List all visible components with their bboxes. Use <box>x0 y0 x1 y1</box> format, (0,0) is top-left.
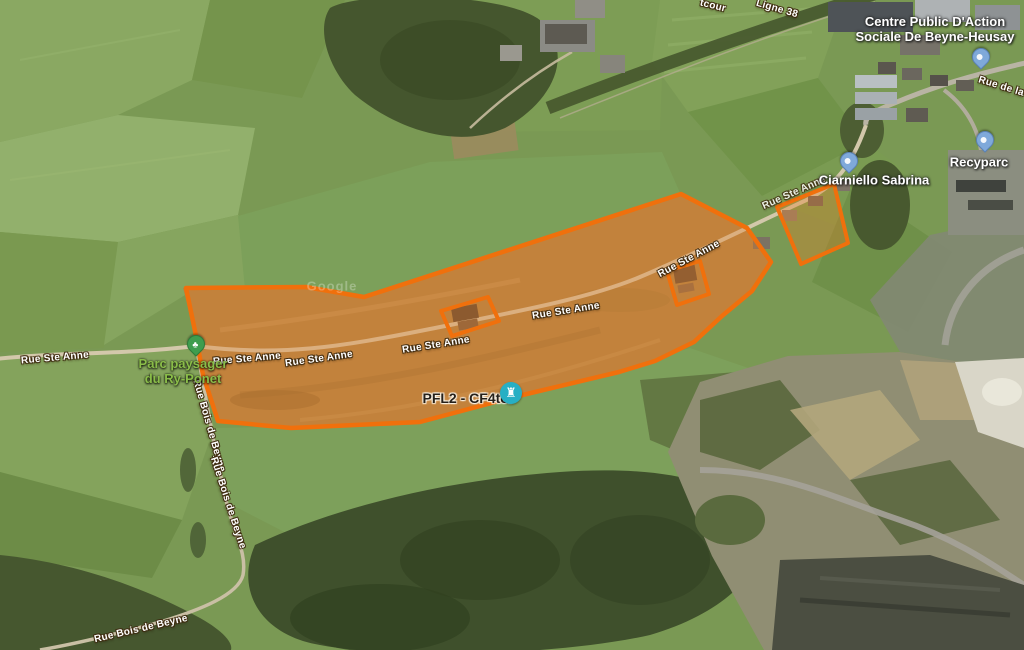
satellite-imagery <box>0 0 1024 650</box>
tower-icon: ♜ <box>505 385 517 400</box>
satellite-map-viewport[interactable]: Rue Ste Anne Rue Ste Anne Rue Ste Anne R… <box>0 0 1024 650</box>
pin-dot-icon <box>979 136 987 144</box>
pin-dot-icon <box>975 53 983 61</box>
tree-icon: ♣ <box>188 338 202 352</box>
pin-dot-icon <box>843 157 851 165</box>
